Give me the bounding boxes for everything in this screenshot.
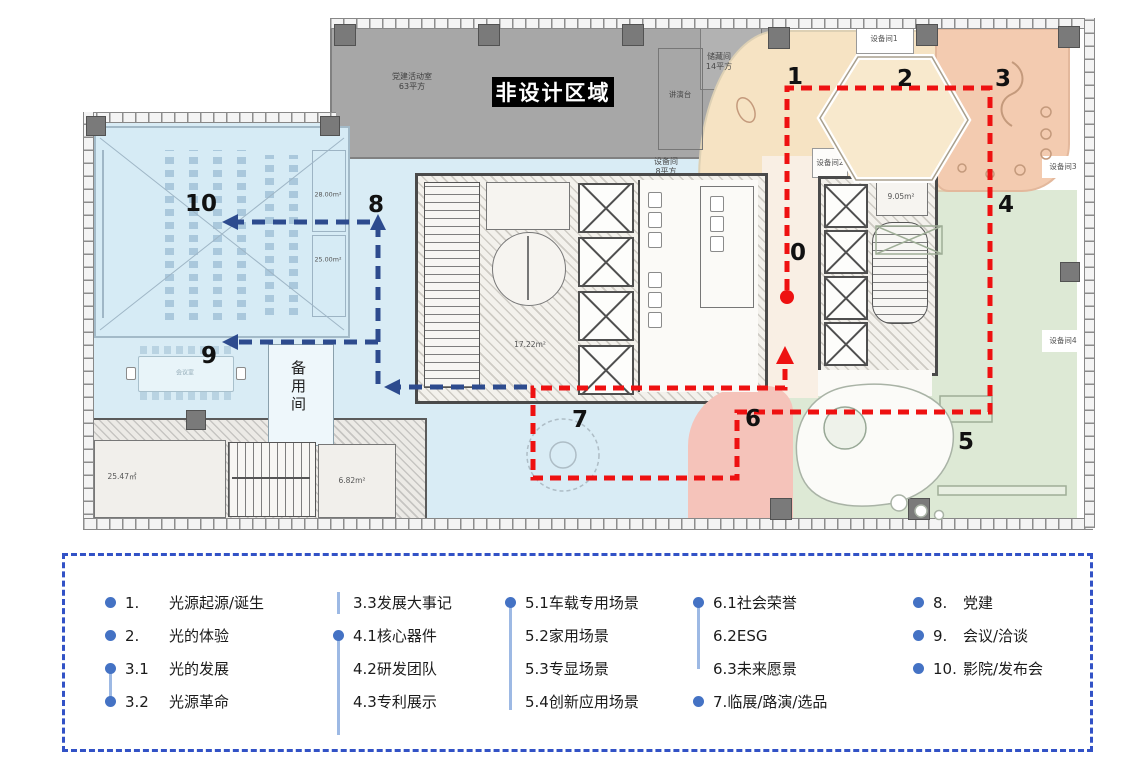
bullet-icon [913,630,924,641]
column-4 [768,27,790,49]
elevator-5 [824,184,868,228]
legend-item-num: 8. [933,594,963,612]
legend-item-num: 6.3 [713,660,737,678]
legend-item-5-2: 5.2 家用场景 [505,619,609,652]
bullet-gutter [913,597,933,608]
legend-item-num: 4.1 [353,627,377,645]
legend-item-num: 5.1 [525,594,549,612]
wc-fixture-7 [710,196,724,212]
party-room-area: 63平方 [399,82,425,91]
equip3-label: 设备间3 [1042,162,1084,171]
bullet-gutter [333,630,353,641]
legend-item-num: 5.3 [525,660,549,678]
service-stair-divider [232,477,310,479]
route-number-10: 10 [185,191,217,217]
room28-area: 28.00m² [309,191,346,199]
east-core-white [818,370,932,396]
zone-corridor-0 [762,156,818,398]
elevator-3 [578,291,634,341]
route-number-5: 5 [958,429,974,455]
legend-item-num: 2. [125,627,169,645]
legend-item-label: ESG [737,627,768,645]
bullet-icon [105,597,116,608]
legend-item-num: 9. [933,627,963,645]
legend-item-label: 光的体验 [169,625,229,646]
legend-item-num: 4.2 [353,660,377,678]
elevator-2 [578,237,634,287]
legend-item-label: 创新应用场景 [549,691,639,712]
core-area-label: 17.22m² [506,340,554,349]
meeting-chairs-bottom [140,392,232,400]
equip4-label: 设备间4 [1042,336,1084,345]
column-11 [908,498,930,520]
wc-fixture-1 [648,192,662,208]
bullet-gutter [693,597,713,608]
core-round-stair-divider [527,236,529,300]
legend-item-5-4: 5.4 创新应用场景 [505,685,639,718]
party-room-label: 党建活动室 63平方 [380,72,444,92]
legend-item-label: 核心器件 [377,625,437,646]
equip2-label: 设备间2 [810,158,850,167]
rehearsal-room-25 [312,235,346,317]
legend-column-4: 6.1 社会荣誉 6.2 ESG 6.3 未来愿景 7. 临展/路演/选品 [693,556,893,749]
elevator-4 [578,345,634,395]
column-2 [478,24,500,46]
backup-room-label: 备用间 [288,360,309,414]
legend-column-1: 1. 光源起源/诞生 2. 光的体验 3.1 光的发展 3.2 光源革命 [105,556,330,749]
column-10 [770,498,792,520]
legend-item-num: 5.4 [525,693,549,711]
bullet-icon [333,630,344,641]
service-stair [228,442,316,517]
equip-small-area: 8平方 [655,167,676,176]
legend-item-num: 7. [713,693,727,711]
equip1-label: 设备间1 [858,34,910,43]
wc-fixture-5 [648,292,662,308]
storage-label: 储藏间 14平方 [698,52,740,72]
legend-item-label: 专利展示 [377,691,437,712]
bullet-gutter [105,630,125,641]
bullet-gutter [913,630,933,641]
facade-left [83,112,94,528]
route-number-2: 2 [897,66,913,92]
column-8 [320,116,340,136]
elevator-8 [824,322,868,366]
core-mid-room [486,182,570,230]
route-number-1: 1 [787,64,803,90]
cinema-seats-1 [165,150,174,320]
legend-item-5-3: 5.3 专显场景 [505,652,609,685]
legend-item-label: 社会荣誉 [737,592,797,613]
legend-item-label: 发展大事记 [377,592,452,613]
bullet-gutter [105,696,125,707]
wc-fixture-3 [648,232,662,248]
wc-fixture-6 [648,312,662,328]
legend-item-label: 党建 [963,592,993,613]
floor-plan-slide: 讲演台 储藏间 14平方 党建活动室 63平方 非设计区域 设备间 8平方 设备… [0,0,1148,777]
wc-fixture-9 [710,236,724,252]
legend-item-label: 临展/路演/选品 [727,691,827,712]
bullet-icon [105,663,116,674]
legend-item-3-3: 3.3 发展大事记 [333,586,452,619]
meeting-chair-right [236,367,246,380]
legend-item-7: 7. 临展/路演/选品 [693,685,827,718]
legend-item-label: 光的发展 [169,658,229,679]
route-number-4: 4 [998,192,1014,218]
legend-item-label: 光源革命 [169,691,229,712]
column-5 [916,24,938,46]
route-number-7: 7 [572,407,588,433]
column-7 [86,116,106,136]
it-room-area: 9.05m² [878,192,924,201]
bullet-icon [105,630,116,641]
storage-name: 储藏间 [707,52,731,61]
column-1 [334,24,356,46]
legend-column-5: 8. 党建 9. 会议/洽谈 10. 影院/发布会 [913,556,1083,749]
meeting-chairs-top [140,346,232,354]
legend-item-label: 研发团队 [377,658,437,679]
storage-area: 14平方 [706,62,732,71]
cinema-seats-3 [213,150,222,320]
facade-top [330,18,1093,29]
equip-small-name: 设备间 [654,157,678,166]
legend-item-num: 3.2 [125,693,169,711]
column-3 [622,24,644,46]
facade-right [1084,18,1095,528]
legend-item-num: 6.2 [713,627,737,645]
bullet-icon [693,696,704,707]
legend-item-label: 影院/发布会 [963,658,1043,679]
column-12 [1060,262,1080,282]
bullet-icon [913,597,924,608]
route-number-6: 6 [745,406,761,432]
legend-item-3-2: 3.2 光源革命 [105,685,229,718]
wc-fixture-8 [710,216,724,232]
legend-item-label: 光源起源/诞生 [169,592,264,613]
legend-box: 1. 光源起源/诞生 2. 光的体验 3.1 光的发展 3.2 光源革命 [62,553,1093,752]
legend-item-4-2: 4.2 研发团队 [333,652,437,685]
legend-item-label: 会议/洽谈 [963,625,1028,646]
legend-item-6-1: 6.1 社会荣誉 [693,586,797,619]
legend-item-6-2: 6.2 ESG [693,619,767,652]
bullet-gutter [693,696,713,707]
route-number-0: 0 [790,240,806,266]
non-design-badge: 非设计区域 [492,77,614,107]
column-9 [186,410,206,430]
legend-item-label: 家用场景 [549,625,609,646]
route-number-9: 9 [201,343,217,369]
route-number-3: 3 [995,66,1011,92]
bullet-icon [105,696,116,707]
legend-item-num: 3.1 [125,660,169,678]
bullet-gutter [913,663,933,674]
route-number-8: 8 [368,192,384,218]
bullet-gutter [505,597,525,608]
wc-fixture-2 [648,212,662,228]
legend-item-num: 4.3 [353,693,377,711]
party-room-name: 党建活动室 [392,72,432,81]
legend-item-8: 8. 党建 [913,586,993,619]
bullet-icon [505,597,516,608]
legend-item-num: 5.2 [525,627,549,645]
service-room-b-area: 6.82m² [330,476,374,485]
bullet-gutter [105,663,125,674]
legend-item-1: 1. 光源起源/诞生 [105,586,264,619]
wc-fixture-4 [648,272,662,288]
equip-small-label: 设备间 8平方 [646,157,686,177]
cinema-seats-4 [237,150,246,320]
bullet-gutter [105,597,125,608]
bullet-icon [693,597,704,608]
cinema-seats-2 [189,150,198,320]
column-6 [1058,26,1080,48]
bullet-icon [913,663,924,674]
wc-room-right [700,186,754,308]
legend-item-label: 车载专用场景 [549,592,639,613]
legend-item-num: 6.1 [713,594,737,612]
legend-item-3-1: 3.1 光的发展 [105,652,229,685]
elevator-6 [824,230,868,274]
meeting-room-label: 会议室 [165,369,205,376]
legend-item-label: 专显场景 [549,658,609,679]
legend-item-4-1: 4.1 核心器件 [333,619,437,652]
elevator-1 [578,183,634,233]
facade-bottom [83,518,1093,530]
cinema-seats-6 [289,155,298,315]
core-stair-left [424,182,480,388]
room25-area: 25.00m² [309,256,346,264]
elevator-7 [824,276,868,320]
legend-item-10: 10. 影院/发布会 [913,652,1043,685]
core-round-stair [492,232,566,306]
legend-column-3: 5.1 车载专用场景 5.2 家用场景 5.3 专显场景 5.4 创新应用场景 [505,556,690,749]
meeting-chair-left [126,367,136,380]
legend-item-2: 2. 光的体验 [105,619,229,652]
legend-item-num: 10. [933,660,963,678]
legend-item-4-3: 4.3 专利展示 [333,685,437,718]
facade-top-west [83,112,336,123]
legend-column-2: 3.3 发展大事记 4.1 核心器件 4.2 研发团队 4.3 专利展示 [333,556,498,749]
legend-item-9: 9. 会议/洽谈 [913,619,1028,652]
legend-item-num: 1. [125,594,169,612]
service-room-a-area: 25.47㎡ [100,472,144,481]
east-core-stair [872,222,928,324]
legend-item-6-3: 6.3 未来愿景 [693,652,797,685]
legend-item-label: 未来愿景 [737,658,797,679]
legend-item-num: 3.3 [353,594,377,612]
podium-label: 讲演台 [660,90,700,99]
cinema-seats-5 [265,155,274,315]
legend-item-5-1: 5.1 车载专用场景 [505,586,639,619]
